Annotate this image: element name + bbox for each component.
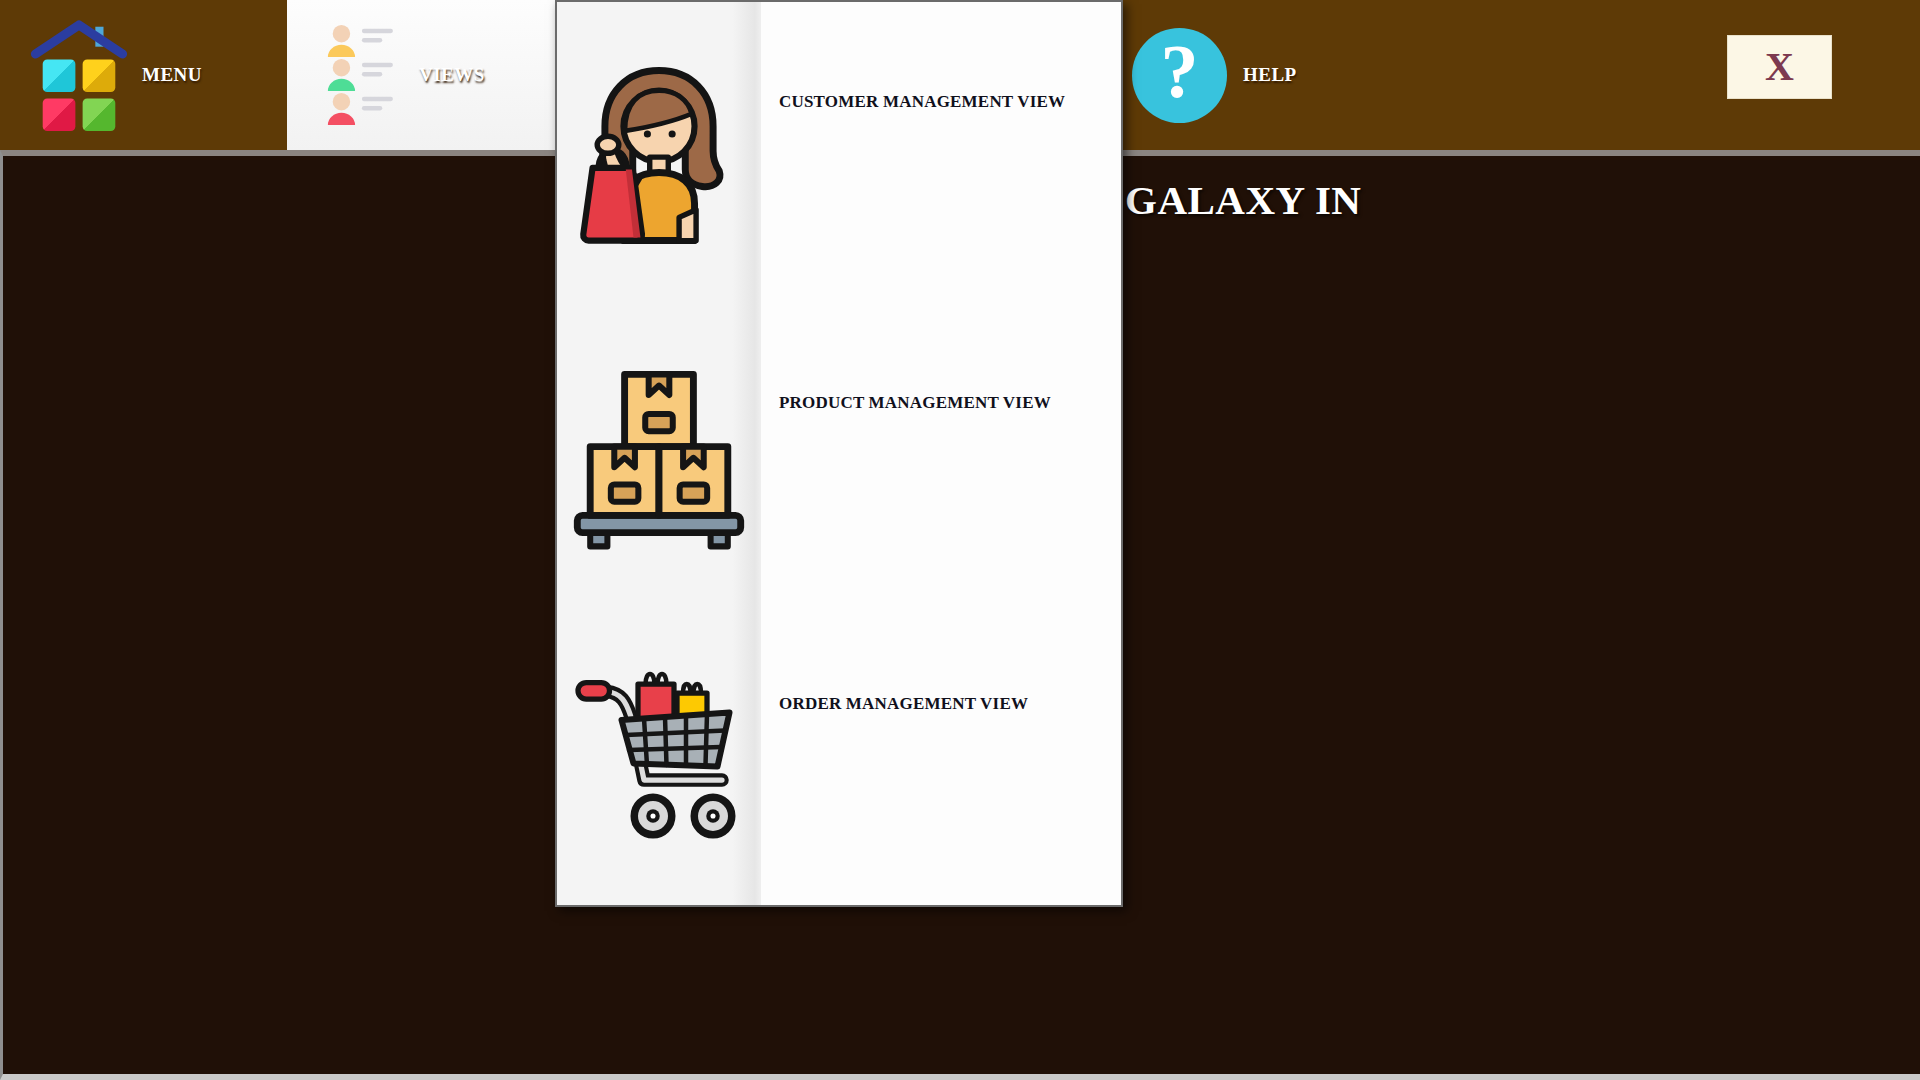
menu-item-order-management[interactable]: ORDER MANAGEMENT VIEW [557,604,1121,905]
user-list-icon [317,22,397,129]
woman-shopper-icon [557,2,761,303]
app-window: MENU [0,0,1920,1080]
menu-label: MENU [142,64,202,86]
menu-item-label: CUSTOMER MANAGEMENT VIEW [779,92,1065,112]
question-mark-icon: ? [1132,28,1227,123]
help-label: HELP [1243,64,1297,86]
close-button[interactable]: X [1727,35,1832,99]
views-menu-button[interactable]: VIEWS [287,0,555,150]
menu-item-label: PRODUCT MANAGEMENT VIEW [779,393,1051,413]
views-label: VIEWS [419,64,485,86]
house-grid-icon [30,12,128,138]
views-dropdown-menu: CUSTOMER MANAGEMENT VIEW [555,0,1123,907]
menu-item-product-management[interactable]: PRODUCT MANAGEMENT VIEW [557,303,1121,604]
menu-item-label: ORDER MANAGEMENT VIEW [779,694,1028,714]
page-title: GALAXY IN [1125,176,1361,224]
stacked-boxes-icon [557,303,761,604]
shopping-cart-icon [557,604,761,905]
menu-item-customer-management[interactable]: CUSTOMER MANAGEMENT VIEW [557,2,1121,303]
help-button[interactable]: ? HELP [1132,0,1297,150]
menu-button[interactable]: MENU [30,0,202,150]
